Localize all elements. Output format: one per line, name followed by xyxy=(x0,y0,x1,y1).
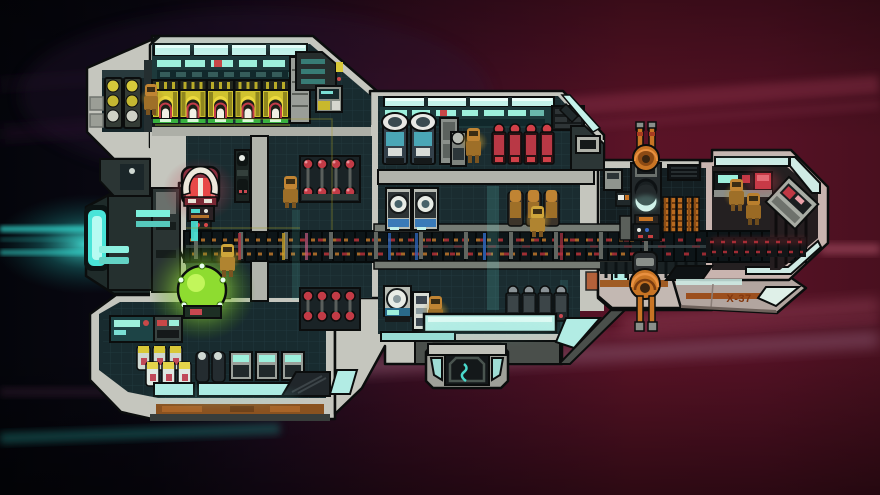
svg-text:X-37: X-37 xyxy=(726,293,751,305)
